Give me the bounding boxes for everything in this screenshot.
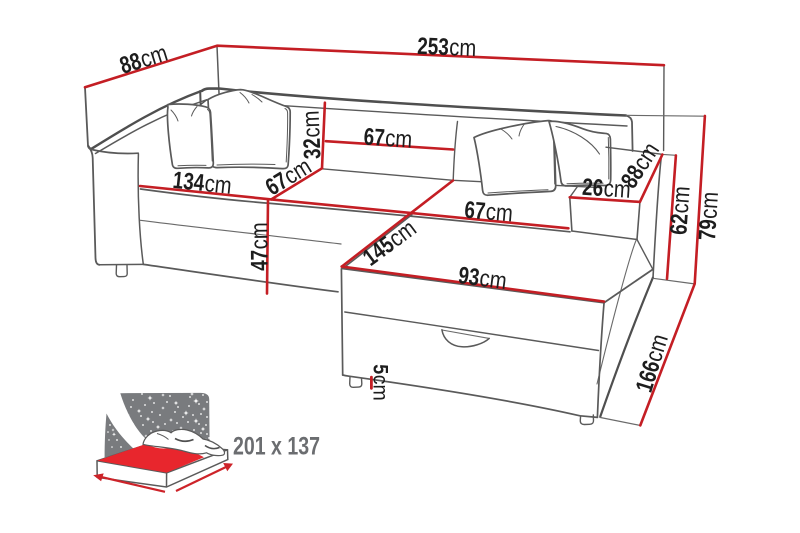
- svg-text:cm: cm: [203, 170, 233, 200]
- svg-text:134: 134: [172, 167, 207, 197]
- svg-text:cm: cm: [667, 185, 696, 214]
- svg-text:cm: cm: [485, 198, 514, 227]
- svg-text:79: 79: [694, 218, 722, 241]
- svg-text:67: 67: [463, 197, 486, 226]
- svg-text:67: 67: [363, 123, 386, 151]
- svg-text:253: 253: [417, 33, 450, 61]
- svg-text:5: 5: [369, 364, 392, 374]
- svg-text:26: 26: [581, 174, 604, 202]
- svg-text:cm: cm: [478, 265, 508, 295]
- svg-text:cm: cm: [369, 375, 392, 401]
- svg-text:cm: cm: [384, 125, 413, 154]
- svg-text:cm: cm: [298, 110, 326, 138]
- svg-text:cm: cm: [246, 222, 273, 249]
- svg-text:47: 47: [246, 250, 273, 271]
- svg-text:62: 62: [665, 213, 693, 236]
- svg-text:93: 93: [457, 262, 481, 291]
- svg-text:cm: cm: [695, 191, 724, 220]
- svg-text:cm: cm: [449, 34, 477, 62]
- svg-text:201 x 137: 201 x 137: [233, 433, 320, 461]
